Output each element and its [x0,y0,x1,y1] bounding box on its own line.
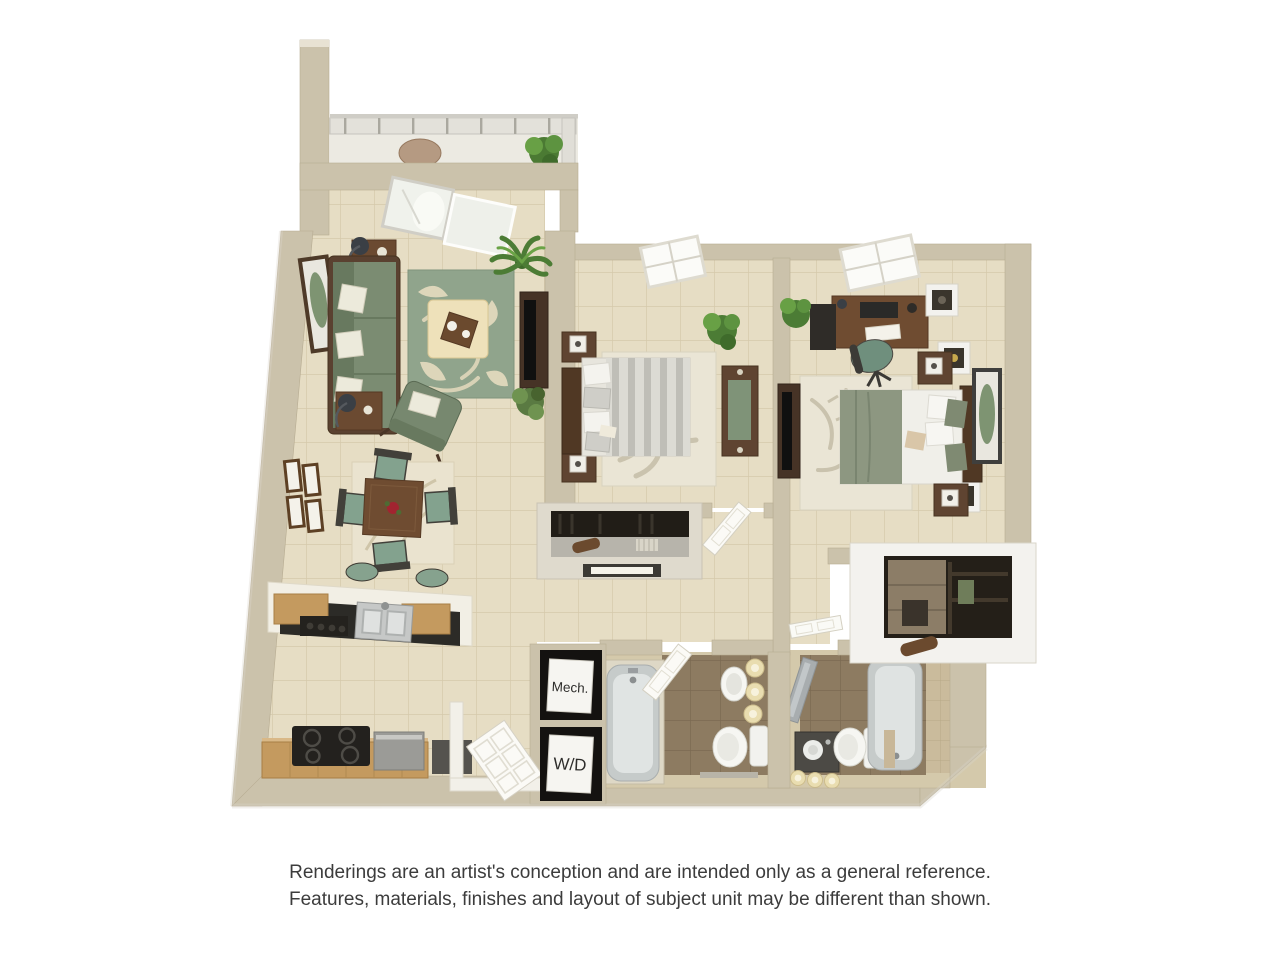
wall-balcony-left [300,40,329,235]
pedestal-sink [721,667,747,701]
file-cabinet [810,304,836,350]
disclaimer-text: Renderings are an artist's conception an… [289,862,991,910]
towel-ladder [884,730,895,768]
dishwasher [374,732,424,770]
bedroom2-wall-art [974,370,1000,462]
cooktop-range [292,726,370,766]
ottoman [428,300,488,358]
washer-dryer-label: W/D [553,754,587,775]
bed-2 [840,386,982,484]
disclaimer-line-2: Features, materials, finishes and layout… [289,889,991,910]
wall-bedroom1-bottom-stub [764,503,773,518]
wall-bath1-top-left [600,640,662,655]
entry-wall-vertical [450,702,463,790]
dining-table [363,479,424,538]
nightstand-2b [934,484,968,516]
hall-floor-b [537,578,790,642]
floor-plan-page: Mech. W/D [0,0,1280,960]
walk-in-closet [850,543,1036,663]
wall-bathroom2-right [950,655,986,747]
disclaimer-line-1: Renderings are an artist's conception an… [289,862,991,883]
wall-balcony-return [560,190,578,232]
closet-chair [902,600,928,626]
dresser-1 [722,366,758,456]
bathroom1-candles [744,659,764,723]
mech-door: Mech. [547,659,594,713]
bathroom-1 [600,644,770,788]
bathroom2-candles [791,771,840,789]
bedroom1-closet [537,503,702,579]
wall-bedrooms-top [558,244,1031,260]
washer-dryer-door: W/D [547,735,594,793]
towel-bar-1 [700,772,758,778]
media-console [520,292,548,388]
floor-plan-rendering: Mech. W/D [0,0,1280,960]
wall-bath1-top-right [712,640,773,655]
nightstand-2a [918,352,952,384]
end-table-bottom [336,392,382,430]
bed-1 [562,358,690,456]
vanity-sink-2 [795,732,839,772]
wall-bedroom2-right [1005,244,1031,550]
kitchen-sink [355,600,414,642]
wall-bath-divider [768,652,790,788]
mech-label: Mech. [551,679,589,696]
tv-stand-2 [778,384,800,478]
wine-rack [300,616,348,636]
toilet-1 [713,726,768,767]
closet-clothes [958,580,974,604]
